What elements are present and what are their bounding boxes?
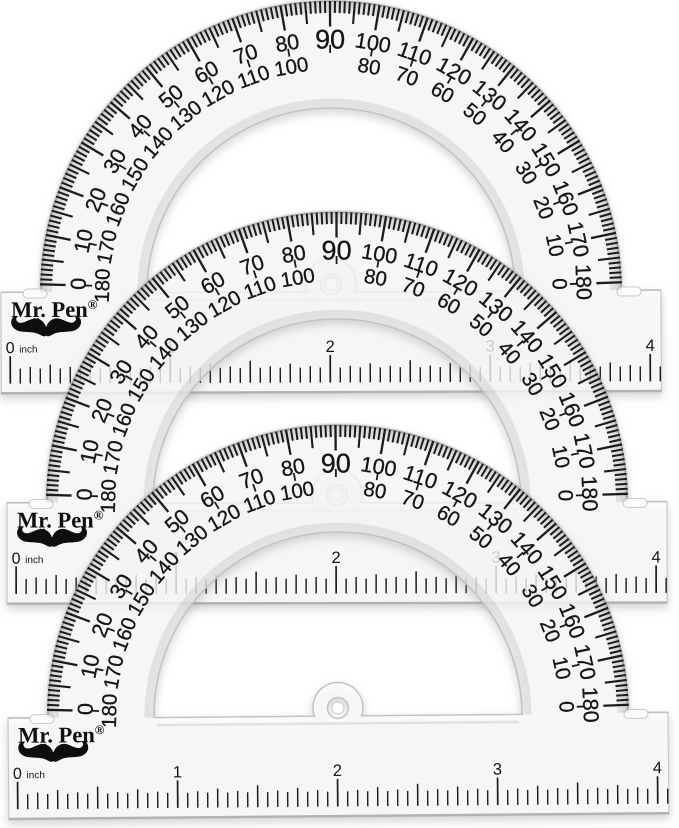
svg-text:80: 80	[279, 454, 307, 482]
svg-text:180: 180	[577, 686, 603, 723]
svg-text:0: 0	[6, 340, 15, 357]
svg-text:80: 80	[362, 477, 388, 503]
svg-text:10: 10	[76, 437, 104, 465]
svg-text:2: 2	[333, 762, 342, 780]
svg-text:inch: inch	[25, 555, 43, 566]
svg-text:0: 0	[72, 488, 96, 501]
svg-text:0: 0	[66, 277, 90, 290]
svg-text:80: 80	[362, 265, 388, 292]
svg-text:0: 0	[73, 703, 97, 716]
svg-text:inch: inch	[19, 345, 37, 356]
svg-text:1: 1	[173, 763, 182, 781]
svg-text:80: 80	[273, 29, 301, 57]
svg-text:10: 10	[541, 232, 568, 259]
svg-text:0: 0	[554, 701, 577, 713]
svg-text:4: 4	[653, 759, 662, 777]
svg-text:180: 180	[571, 264, 596, 301]
svg-text:4: 4	[646, 337, 655, 355]
svg-text:80: 80	[356, 54, 382, 80]
svg-text:90: 90	[322, 235, 352, 265]
svg-text:10: 10	[70, 227, 98, 255]
svg-text:4: 4	[651, 548, 660, 566]
svg-text:90: 90	[315, 24, 345, 54]
svg-text:2: 2	[331, 549, 340, 567]
svg-text:10: 10	[76, 652, 104, 680]
svg-text:Mr. Pen®: Mr. Pen®	[11, 297, 98, 322]
svg-text:0: 0	[554, 489, 577, 501]
svg-text:2: 2	[326, 338, 335, 356]
svg-text:10: 10	[548, 655, 575, 682]
svg-text:180: 180	[577, 475, 602, 512]
svg-text:Mr. Pen®: Mr. Pen®	[18, 722, 105, 748]
svg-text:inch: inch	[26, 770, 44, 781]
svg-text:Mr. Pen®: Mr. Pen®	[17, 507, 104, 532]
svg-text:3: 3	[493, 761, 502, 779]
svg-text:80: 80	[280, 240, 308, 268]
svg-text:0: 0	[547, 278, 570, 290]
svg-text:90: 90	[321, 448, 351, 478]
svg-text:10: 10	[547, 443, 574, 470]
svg-text:0: 0	[13, 766, 22, 783]
svg-text:0: 0	[12, 551, 21, 568]
